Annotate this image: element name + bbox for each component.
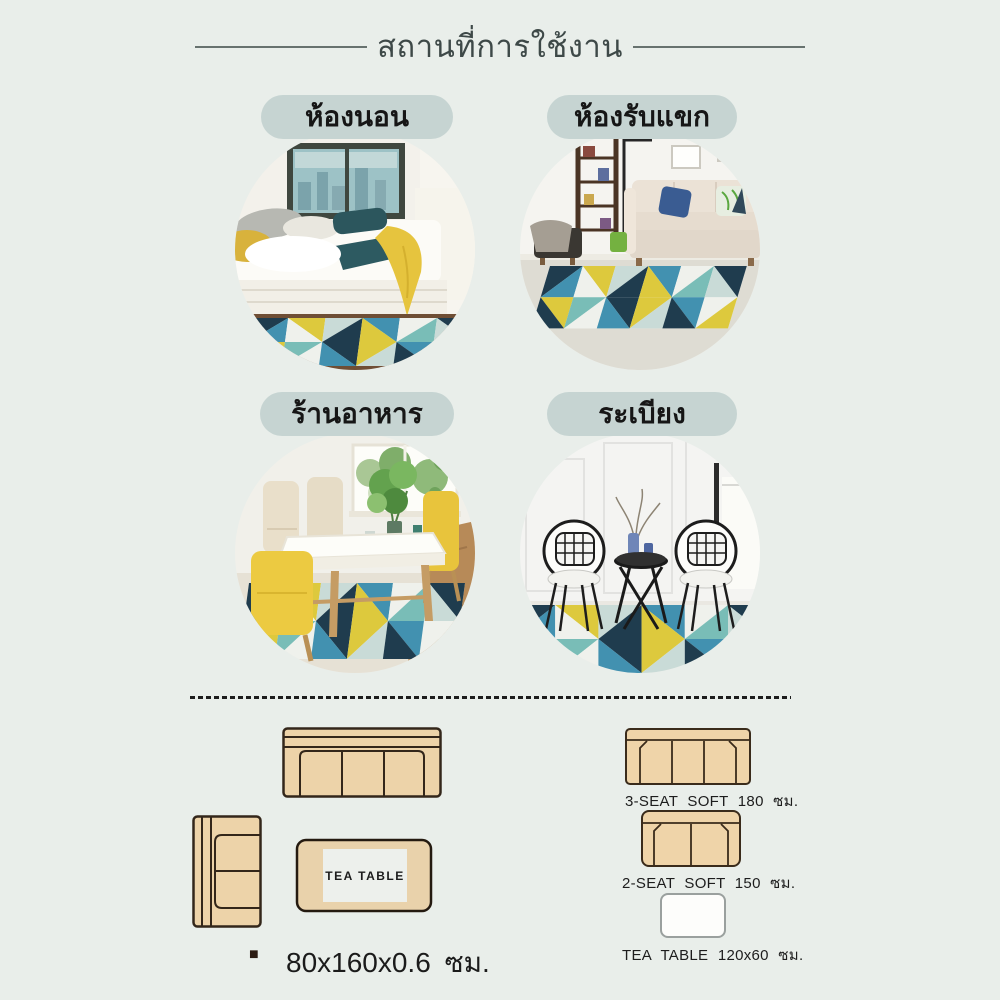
- section-header: สถานที่การใช้งาน: [0, 30, 1000, 64]
- rug-size-text: 80x160x0.6 ซม.: [286, 941, 490, 985]
- tea-table-small-diagram: [660, 893, 726, 938]
- blue-pillow: [658, 186, 692, 219]
- bedroom-photo: [235, 130, 475, 370]
- sofa: [624, 180, 760, 266]
- balcony-photo: [520, 433, 760, 673]
- sofa-2seat-small-diagram: [641, 810, 741, 867]
- tea-table-label: TEA TABLE 120x60 ซม.: [622, 943, 803, 967]
- square-bullet: ■: [249, 947, 259, 963]
- rug-illustration: [244, 318, 474, 366]
- tea-table-text: TEA TABLE: [325, 869, 405, 883]
- label-living-room: ห้องรับแขก: [547, 95, 737, 139]
- title-rule-left: [195, 46, 367, 48]
- restaurant-scene-illustration: [235, 433, 475, 673]
- living-room-scene-illustration: [520, 130, 760, 370]
- tea-table-top-view-diagram: TEA TABLE: [295, 838, 433, 913]
- bedroom-scene-illustration: [235, 130, 475, 370]
- rug-illustration: [520, 605, 760, 673]
- rug-illustration: [531, 266, 747, 328]
- dotted-divider: [190, 696, 791, 699]
- living-room-photo: [520, 130, 760, 370]
- sofa-3seat-small-diagram: [625, 728, 751, 785]
- leaf-pillow: [716, 186, 746, 216]
- balcony-scene-illustration: [520, 433, 760, 673]
- label-bedroom: ห้องนอน: [261, 95, 453, 139]
- restaurant-photo: [235, 433, 475, 673]
- sofa-2seat-side-top-view-diagram: [192, 815, 262, 928]
- page-title: สถานที่การใช้งาน: [377, 30, 623, 64]
- sofa-2seat-label: 2-SEAT SOFT 150 ซม.: [622, 871, 795, 895]
- title-rule-right: [633, 46, 805, 48]
- green-stool: [610, 232, 627, 252]
- window: [290, 146, 402, 216]
- product-usage-infographic: สถานที่การใช้งาน ห้องนอน ห้องรับแขก ร้าน…: [0, 0, 1000, 1000]
- label-restaurant: ร้านอาหาร: [260, 392, 454, 436]
- sofa-3seat-top-view-diagram: [282, 727, 442, 798]
- label-balcony: ระเบียง: [547, 392, 737, 436]
